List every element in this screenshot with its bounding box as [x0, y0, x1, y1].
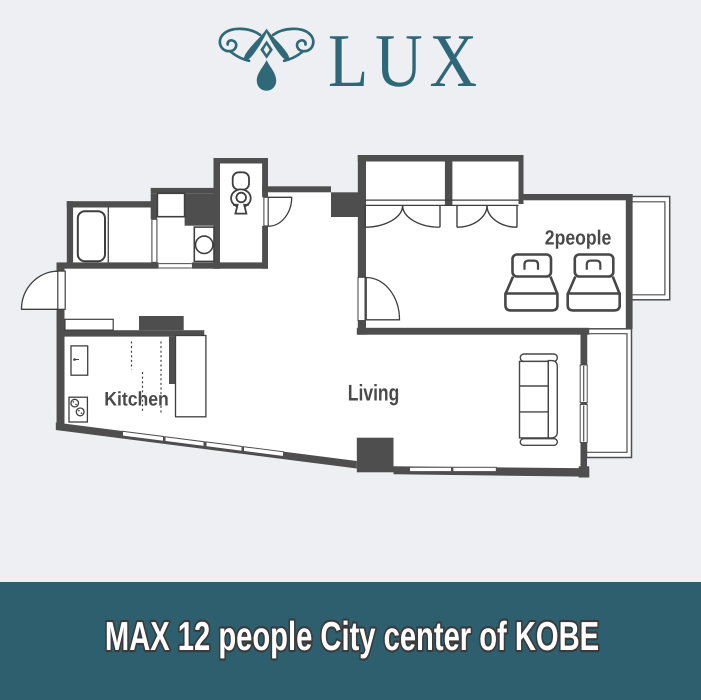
- svg-text:MAX 12 people City center of: MAX 12 people City center of KOBE: [105, 613, 599, 659]
- svg-text:Living: Living: [348, 379, 400, 405]
- svg-text:LUX: LUX: [328, 19, 484, 103]
- svg-text:2people: 2people: [545, 227, 612, 250]
- svg-text:Kitchen: Kitchen: [104, 389, 169, 411]
